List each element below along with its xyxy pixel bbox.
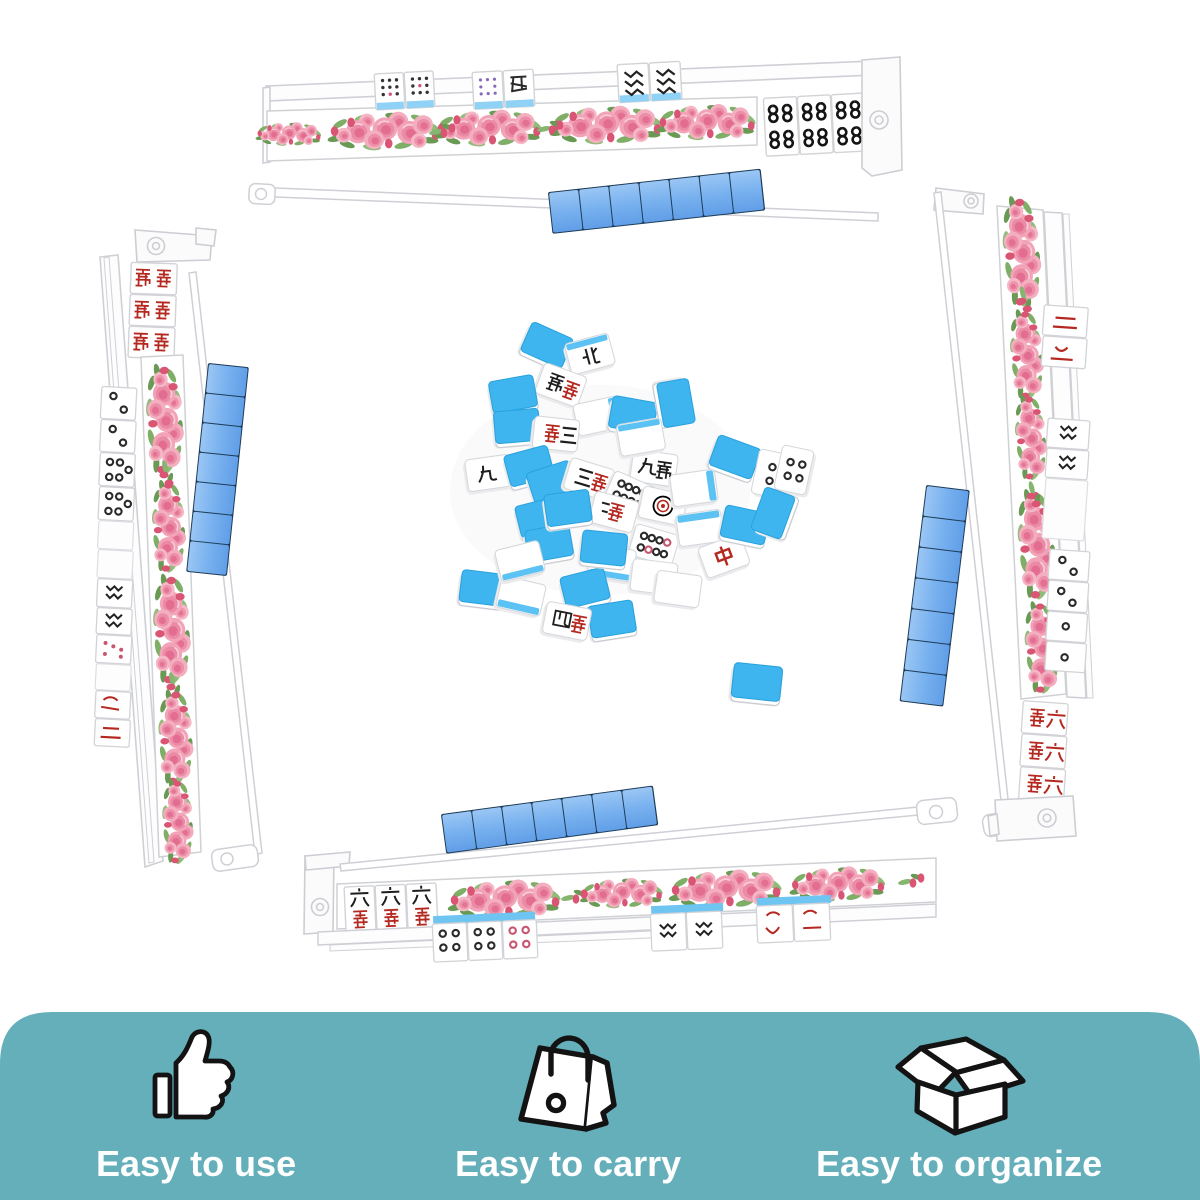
svg-text:Easy to use: Easy to use: [96, 1143, 296, 1184]
svg-text:Easy to carry: Easy to carry: [455, 1143, 681, 1184]
svg-text:Easy to organize: Easy to organize: [816, 1143, 1102, 1184]
